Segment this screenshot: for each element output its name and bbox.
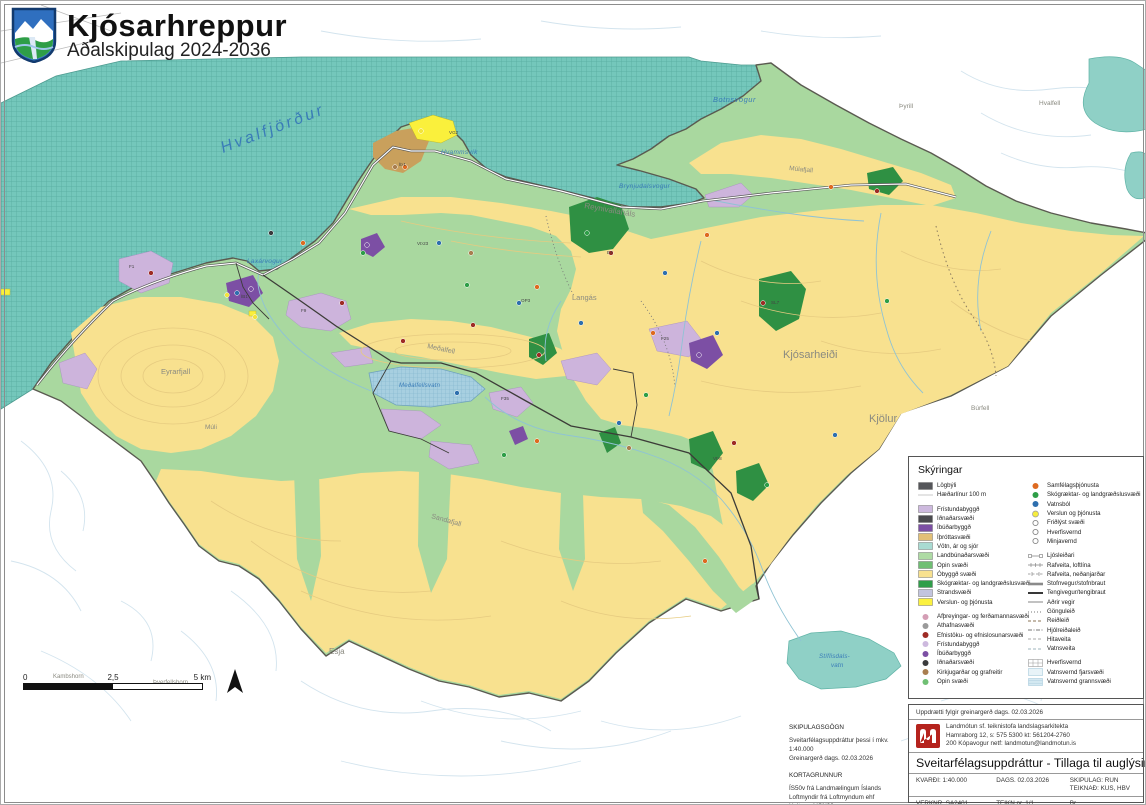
area-code-label: SL7 bbox=[771, 300, 780, 305]
legend-label: Vatnsvernd grannsvæði bbox=[1047, 678, 1111, 685]
terrain-label: Langás bbox=[572, 293, 597, 302]
orange-point-symbol bbox=[705, 233, 710, 238]
legend-label: Verslun og þjónusta bbox=[1047, 510, 1101, 517]
legend-swatch-line-ticks bbox=[1028, 561, 1043, 569]
legend-item: Tengivegur/tengibraut bbox=[1028, 588, 1140, 597]
legend-item: Rafveita, loftlína bbox=[1028, 560, 1140, 569]
water-label: Brynjudalsvogur bbox=[619, 183, 671, 190]
title-block: Uppdrætti fylgir greinargerð dags. 02.03… bbox=[908, 704, 1144, 803]
legend-swatch-line bbox=[1028, 580, 1043, 588]
legend-swatch-swatch bbox=[918, 589, 933, 597]
legend-label: Friðlýst svæði bbox=[1047, 519, 1085, 526]
purple-point-symbol bbox=[249, 287, 254, 292]
purple-point-symbol bbox=[365, 243, 370, 248]
legend-label: Rafveita, neðanjarðar bbox=[1047, 571, 1105, 578]
legend-item: Gönguleið bbox=[1028, 607, 1140, 616]
legend-item: Hæðarlínur 100 m bbox=[918, 490, 1022, 499]
legend-swatch-line bbox=[918, 491, 933, 499]
terrain-label: Kjósarheiði bbox=[783, 349, 837, 361]
notes-section-title: SKIPULAGSGÖGN bbox=[789, 723, 907, 732]
north-arrow-icon bbox=[226, 669, 244, 695]
scale-mid: 2,5 bbox=[107, 673, 118, 682]
blue-point-symbol bbox=[235, 291, 240, 296]
legend-title: Skýringar bbox=[918, 464, 1135, 476]
terrain-label: Kjölur bbox=[869, 413, 897, 425]
legend-label: Óbyggð svæði bbox=[937, 571, 976, 578]
orange-point-symbol bbox=[651, 331, 656, 336]
legend-item: Frístundabyggð bbox=[918, 640, 1022, 649]
legend-label: Ljósleiðari bbox=[1047, 552, 1074, 559]
legend-item: Vatnsvernd grannsvæði bbox=[1028, 677, 1140, 686]
area-code-label: F9 bbox=[301, 308, 307, 313]
firm-line: 200 Kópavogur netf: landmotun@landmotun.… bbox=[946, 740, 1076, 749]
legend-label: Opin svæði bbox=[937, 678, 968, 685]
lake-hvalvatn bbox=[1083, 57, 1146, 132]
legend-item: Hverfisvernd bbox=[1028, 658, 1140, 667]
page-subtitle: Aðalskipulag 2024-2036 bbox=[67, 41, 287, 60]
legend-label: Lögbýli bbox=[937, 482, 956, 489]
blue-point-symbol bbox=[437, 241, 442, 246]
legend-label: Opin svæði bbox=[937, 562, 968, 569]
legend-label: Hverfisvernd bbox=[1047, 529, 1081, 536]
legend-label: Kirkjugarðar og grafreitir bbox=[937, 669, 1002, 676]
brown-point-symbol bbox=[627, 446, 632, 451]
legend-swatch-dot bbox=[918, 622, 933, 630]
brown-point-symbol bbox=[469, 251, 474, 256]
green-point-symbol bbox=[644, 393, 649, 398]
area-code-label: OP3 bbox=[521, 298, 531, 303]
red-point-symbol bbox=[875, 189, 880, 194]
legend-item: Opin svæði bbox=[918, 560, 1022, 569]
legend-label: Hitaveita bbox=[1047, 636, 1071, 643]
notes-line: Loftmyndir frá Loftmyndum ehf bbox=[789, 793, 907, 802]
legend-label: Landbúnaðarsvæði bbox=[937, 552, 989, 559]
red-point-symbol bbox=[732, 441, 737, 446]
terrain-label: Búrfell bbox=[971, 405, 990, 412]
yellow-point-symbol bbox=[225, 293, 230, 298]
legend-label: Verslun- og þjónusta bbox=[937, 599, 993, 606]
legend-label: Frístundabyggð bbox=[937, 506, 979, 513]
date-field: DAGS. 02.03.2026 bbox=[989, 774, 1063, 796]
legend-swatch-box-hatch bbox=[1028, 659, 1043, 667]
map-header: Kjósarhreppur Aðalskipulag 2024-2036 bbox=[11, 7, 287, 63]
legend-label: Íþróttasvæði bbox=[937, 534, 971, 541]
legend-item: Reiðleið bbox=[1028, 616, 1140, 625]
notes-line: ÍS50v frá Landmælingum Íslands bbox=[789, 784, 907, 793]
legend-swatch-dot-ring bbox=[1028, 510, 1043, 518]
red-point-symbol bbox=[401, 339, 406, 344]
legend-item: Óbyggð svæði bbox=[918, 570, 1022, 579]
firm-line: Hamraborg 12, s: 575 5300 kt: 561204-276… bbox=[946, 732, 1076, 741]
legend-swatch-dot bbox=[1028, 491, 1043, 499]
red-point-symbol bbox=[340, 301, 345, 306]
green-point-symbol bbox=[765, 483, 770, 488]
scale-end: 5 km bbox=[194, 673, 211, 682]
legend-swatch-dot bbox=[918, 613, 933, 621]
map-notes: SKIPULAGSGÖGN Sveitarfélagsuppdráttur þe… bbox=[789, 723, 907, 805]
legend-label: Íbúðarbyggð bbox=[937, 524, 971, 531]
blue-point-symbol bbox=[663, 271, 668, 276]
brown-point-symbol bbox=[393, 165, 398, 170]
red-point-symbol bbox=[761, 301, 766, 306]
red-point-symbol bbox=[471, 323, 476, 328]
legend-swatch-line-ticks-dash bbox=[1028, 570, 1043, 578]
legend-swatch-dot bbox=[1028, 500, 1043, 508]
blue-point-symbol bbox=[455, 391, 460, 396]
legend-swatch-swatch bbox=[918, 580, 933, 588]
legend-label: Athafnasvæði bbox=[937, 622, 974, 629]
yellow-point-symbol bbox=[253, 315, 258, 320]
revision-field: Br. bbox=[1063, 797, 1143, 805]
area-code-label: VG2 bbox=[449, 130, 459, 135]
legend-swatch-box-lines bbox=[1028, 678, 1043, 686]
legend-item: Frístundabyggð bbox=[918, 505, 1022, 514]
legend-item: Vatnsból bbox=[1028, 500, 1140, 509]
legend-item: Vötn, ár og sjór bbox=[918, 542, 1022, 551]
legend-box: Skýringar LögbýliHæðarlínur 100 mFrístun… bbox=[908, 456, 1144, 699]
legend-item: Verslun- og þjónusta bbox=[918, 598, 1022, 607]
legend-label: Strandsvæði bbox=[937, 589, 971, 596]
legend-item: Íbúðarbyggð bbox=[918, 523, 1022, 532]
legend-item: Vatnsveita bbox=[1028, 644, 1140, 653]
title-block-note: Uppdrætti fylgir greinargerð dags. 02.03… bbox=[909, 705, 1143, 720]
water-label: Hvammsvík bbox=[441, 149, 478, 156]
legend-swatch-swatch bbox=[918, 524, 933, 532]
legend-item: Rafveita, neðanjarðar bbox=[1028, 570, 1140, 579]
legend-label: Iðnaðarsvæði bbox=[937, 515, 974, 522]
legend-swatch-line bbox=[1028, 589, 1043, 597]
plan-sheet: F1ÍB1VÞ23F9ÍÞ1VG2F25SL7E4OP3F35VÞ8 Hvalf… bbox=[0, 0, 1146, 805]
legend-swatch-dot bbox=[918, 650, 933, 658]
legend-swatch-dot bbox=[918, 640, 933, 648]
legend-label: Hjólreiðaleið bbox=[1047, 627, 1081, 634]
legend-label: Gönguleið bbox=[1047, 608, 1075, 615]
notes-line: Greinargerð dags. 02.03.2026 bbox=[789, 754, 907, 763]
legend-item: Vatnsvernd fjarsvæði bbox=[1028, 668, 1140, 677]
municipality-coat-of-arms-icon bbox=[11, 7, 57, 63]
terrain-label: Þyrill bbox=[899, 103, 914, 110]
green-point-symbol bbox=[465, 283, 470, 288]
legend-swatch-swatch bbox=[918, 533, 933, 541]
legend-label: Iðnaðarsvæði bbox=[937, 659, 974, 666]
notes-section-title: KORTAGRUNNUR bbox=[789, 771, 907, 780]
legend-item: Hverfisvernd bbox=[1028, 527, 1140, 536]
legend-label: Frístundabyggð bbox=[937, 641, 979, 648]
area-code-label: VÞ8 bbox=[713, 456, 722, 461]
legend-item: Iðnaðarsvæði bbox=[918, 514, 1022, 523]
terrain-label: Múli bbox=[205, 424, 217, 431]
legend-swatch-ring bbox=[1028, 519, 1043, 527]
page-title: Kjósarhreppur bbox=[67, 10, 287, 42]
area-code-label: VÞ23 bbox=[417, 241, 429, 246]
red-point-symbol bbox=[149, 271, 154, 276]
orange-point-symbol bbox=[829, 185, 834, 190]
notes-line: Sveitarfélagsuppdráttur þessi í mkv. 1:4… bbox=[789, 736, 907, 754]
legend-item: Landbúnaðarsvæði bbox=[918, 551, 1022, 560]
legend-item: Opin svæði bbox=[918, 677, 1022, 686]
legend-swatch-dashed bbox=[1028, 617, 1043, 625]
legend-item: Lögbýli bbox=[918, 481, 1022, 490]
terrain-label: Hvalfell bbox=[1039, 100, 1061, 107]
terrain-label: Esja bbox=[329, 647, 345, 656]
area-code-label: ÍÞ1 bbox=[399, 161, 406, 167]
legend-swatch-swatch bbox=[918, 505, 933, 513]
legend-swatch-ring bbox=[1028, 537, 1043, 545]
scale-field: KVARÐI: 1:40.000 bbox=[909, 774, 989, 796]
legend-label: Íbúðarbyggð bbox=[937, 650, 971, 657]
legend-item: Afþreyingar- og ferðamannasvæði bbox=[918, 612, 1022, 621]
blue-point-symbol bbox=[715, 331, 720, 336]
green-point-symbol bbox=[361, 251, 366, 256]
legend-label: Hæðarlínur 100 m bbox=[937, 491, 986, 498]
water-label: Laxárvogur bbox=[247, 258, 283, 265]
legend-label: Reiðleið bbox=[1047, 617, 1069, 624]
legend-item: Friðlýst svæði bbox=[1028, 518, 1140, 527]
green-point-symbol bbox=[885, 299, 890, 304]
water-label: Botnsvogur bbox=[713, 95, 756, 104]
legend-item: Verslun og þjónusta bbox=[1028, 509, 1140, 518]
blue-point-symbol bbox=[833, 433, 838, 438]
blue-point-symbol bbox=[617, 421, 622, 426]
area-code-label: E4 bbox=[607, 250, 613, 255]
legend-item: Skógræktar- og landgræðslusvæði bbox=[918, 579, 1022, 588]
sheet-field: TEIKN nr. 1/1 bbox=[989, 797, 1063, 805]
legend-item: Íbúðarbyggð bbox=[918, 649, 1022, 658]
project-number-field: VERKNR. SA2401 bbox=[909, 797, 989, 805]
legend-item: Hjólreiðaleið bbox=[1028, 625, 1140, 634]
red-point-symbol bbox=[537, 353, 542, 358]
plan-by-field: SKIPULAG: RUN bbox=[1070, 777, 1136, 785]
legend-swatch-swatch bbox=[918, 542, 933, 550]
area-code-label: ÍB1 bbox=[241, 293, 248, 299]
legend-swatch-swatch bbox=[918, 552, 933, 560]
legend-label: Skógræktar- og landgræðslusvæði bbox=[1047, 491, 1140, 498]
legend-label: Hverfisvernd bbox=[1047, 659, 1081, 666]
legend-item: Skógræktar- og landgræðslusvæði bbox=[1028, 490, 1140, 499]
legend-label: Vatnsveita bbox=[1047, 645, 1075, 652]
legend-swatch-dashdot bbox=[1028, 626, 1043, 634]
legend-swatch-dot bbox=[918, 678, 933, 686]
orange-point-symbol bbox=[301, 241, 306, 246]
orange-point-symbol bbox=[535, 285, 540, 290]
legend-swatch-dot bbox=[918, 659, 933, 667]
legend-swatch-line bbox=[1028, 598, 1043, 606]
legend-label: Vötn, ár og sjór bbox=[937, 543, 978, 550]
drawn-by-field: TEIKNAÐ: KUS, HBV bbox=[1070, 785, 1136, 793]
area-code-label: F25 bbox=[661, 336, 669, 341]
legend-label: Efnistöku- og efnislosunarsvæði bbox=[937, 632, 1023, 639]
legend-column-right: SamfélagsþjónustaSkógræktar- og landgræð… bbox=[1028, 481, 1140, 686]
scale-bar: 0 2,5 5 km bbox=[23, 673, 203, 690]
legend-swatch-swatch bbox=[918, 598, 933, 606]
water-label: Stíflisdals- bbox=[819, 653, 850, 660]
area-code-label: F35 bbox=[501, 396, 509, 401]
drawing-title: Sveitarfélagsuppdráttur - Tillaga til au… bbox=[909, 753, 1143, 774]
yellow-point-symbol bbox=[419, 129, 424, 134]
legend-swatch-swatch bbox=[918, 561, 933, 569]
legend-swatch-dashed bbox=[1028, 635, 1043, 643]
legend-item: Aðrir vegir bbox=[1028, 598, 1140, 607]
legend-label: Samfélagsþjónusta bbox=[1047, 482, 1099, 489]
legend-swatch-dashed bbox=[1028, 645, 1043, 653]
purple-point-symbol bbox=[697, 353, 702, 358]
legend-swatch-line-squares bbox=[1028, 552, 1043, 560]
legend-swatch-dot bbox=[918, 668, 933, 676]
area-code-label: F1 bbox=[129, 264, 135, 269]
legend-item: Athafnasvæði bbox=[918, 621, 1022, 630]
legend-swatch-ring bbox=[1028, 528, 1043, 536]
legend-item: Iðnaðarsvæði bbox=[918, 658, 1022, 667]
legend-swatch-dot bbox=[918, 631, 933, 639]
legend-swatch-swatch bbox=[918, 482, 933, 490]
legend-item: Samfélagsþjónusta bbox=[1028, 481, 1140, 490]
legend-item: Strandsvæði bbox=[918, 588, 1022, 597]
legend-item: Minjavernd bbox=[1028, 537, 1140, 546]
orange-point-symbol bbox=[703, 559, 708, 564]
legend-item: Íþróttasvæði bbox=[918, 532, 1022, 541]
legend-swatch-dotted bbox=[1028, 608, 1043, 616]
legend-label: Rafveita, loftlína bbox=[1047, 562, 1091, 569]
legend-label: Stofnvegur/stofnbraut bbox=[1047, 580, 1105, 587]
green-point-symbol bbox=[585, 231, 590, 236]
legend-label: Vatnsvernd fjarsvæði bbox=[1047, 669, 1104, 676]
water-label: vatn bbox=[831, 662, 844, 669]
black-point-symbol bbox=[269, 231, 274, 236]
green-point-symbol bbox=[502, 453, 507, 458]
blue-point-symbol bbox=[579, 321, 584, 326]
legend-label: Skógræktar- og landgræðslusvæði bbox=[937, 580, 1030, 587]
legend-label: Vatnsból bbox=[1047, 501, 1070, 508]
water-label: Meðalfellsvatn bbox=[399, 383, 441, 389]
landmotun-logo-icon bbox=[916, 724, 940, 748]
legend-column-left: LögbýliHæðarlínur 100 mFrístundabyggðIðn… bbox=[918, 481, 1022, 686]
legend-label: Minjavernd bbox=[1047, 538, 1077, 545]
legend-swatch-swatch bbox=[918, 570, 933, 578]
legend-label: Afþreyingar- og ferðamannasvæði bbox=[937, 613, 1029, 620]
legend-item: Ljósleiðari bbox=[1028, 551, 1140, 560]
legend-swatch-dot bbox=[1028, 482, 1043, 490]
legend-swatch-box bbox=[1028, 668, 1043, 676]
legend-item: Efnistöku- og efnislosunarsvæði bbox=[918, 630, 1022, 639]
orange-point-symbol bbox=[535, 439, 540, 444]
legend-item: Kirkjugarðar og grafreitir bbox=[918, 668, 1022, 677]
terrain-label: Eyrarfjall bbox=[161, 367, 191, 376]
legend-swatch-swatch bbox=[918, 515, 933, 523]
legend-item: Stofnvegur/stofnbraut bbox=[1028, 579, 1140, 588]
scale-start: 0 bbox=[23, 673, 27, 682]
legend-label: Tengivegur/tengibraut bbox=[1047, 589, 1106, 596]
legend-item: Hitaveita bbox=[1028, 635, 1140, 644]
legend-label: Aðrir vegir bbox=[1047, 599, 1075, 606]
firm-line: Landmótun sf. teiknistofa landslagsarkit… bbox=[946, 723, 1076, 732]
